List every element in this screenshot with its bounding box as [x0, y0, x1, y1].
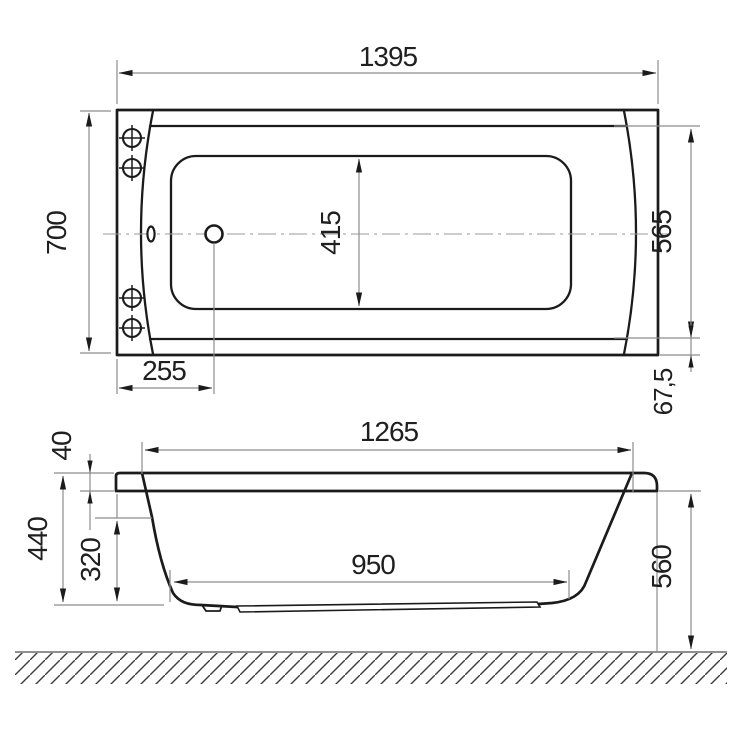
jet-marker: [119, 315, 145, 341]
dim-label-basin-width: 415: [315, 211, 346, 255]
dim-label-inner-depth: 320: [75, 538, 106, 582]
dim-label-bottom-length: 950: [351, 549, 395, 580]
dim-top-opening-length: 1265: [142, 416, 633, 492]
dim-label-inner-width-right: 565: [646, 210, 677, 254]
rim-profile: [116, 473, 657, 491]
dim-label-shell-height: 440: [22, 517, 53, 561]
dim-bottom-length: 950: [170, 549, 569, 602]
right-wall-profile: [538, 473, 632, 604]
tub-outer-rim: [117, 110, 658, 355]
drain-hole: [206, 226, 223, 243]
ground: [15, 652, 727, 684]
dim-label-mounting-height: 560: [646, 545, 677, 589]
dim-mounting-height: 560: [646, 491, 701, 651]
dim-edge-margin: 67,5: [648, 320, 700, 415]
dim-rim-height: 40: [46, 431, 114, 530]
dim-label-drain-offset: 255: [142, 355, 186, 386]
dim-label-overall-length: 1395: [359, 41, 418, 72]
basin-floor-outline: [171, 156, 571, 309]
dim-label-top-opening-length: 1265: [360, 416, 419, 447]
top-view: 1395 700 415 255 565: [41, 41, 700, 415]
jet-marker: [119, 125, 145, 151]
jet-marker: [119, 155, 145, 181]
inner-rim-right-arc: [624, 111, 636, 354]
side-view: 1265 40 440 320 950: [15, 416, 727, 684]
jet-marker: [119, 285, 145, 311]
bathtub-drawing: 1395 700 415 255 565: [0, 0, 742, 740]
dim-basin-width: 415: [315, 159, 359, 306]
technical-drawing-page: 1395 700 415 255 565: [0, 0, 742, 740]
overflow-hole: [147, 227, 154, 242]
ground-hatching: [15, 653, 727, 684]
left-wall-profile: [142, 473, 237, 607]
base-board: [237, 602, 540, 612]
side-view-outline: [116, 473, 657, 612]
dim-overall-width: 700: [41, 111, 111, 353]
dim-label-rim-height: 40: [46, 431, 77, 461]
arrowhead: [688, 355, 693, 368]
dim-label-edge-margin: 67,5: [648, 368, 678, 415]
dim-inner-depth: 320: [75, 494, 152, 601]
top-view-outline: [117, 110, 658, 355]
arrowhead: [87, 461, 92, 474]
arrowhead: [87, 491, 92, 504]
arrowhead: [688, 326, 693, 339]
dim-overall-length: 1395: [117, 41, 658, 104]
dim-label-overall-width: 700: [41, 211, 72, 255]
